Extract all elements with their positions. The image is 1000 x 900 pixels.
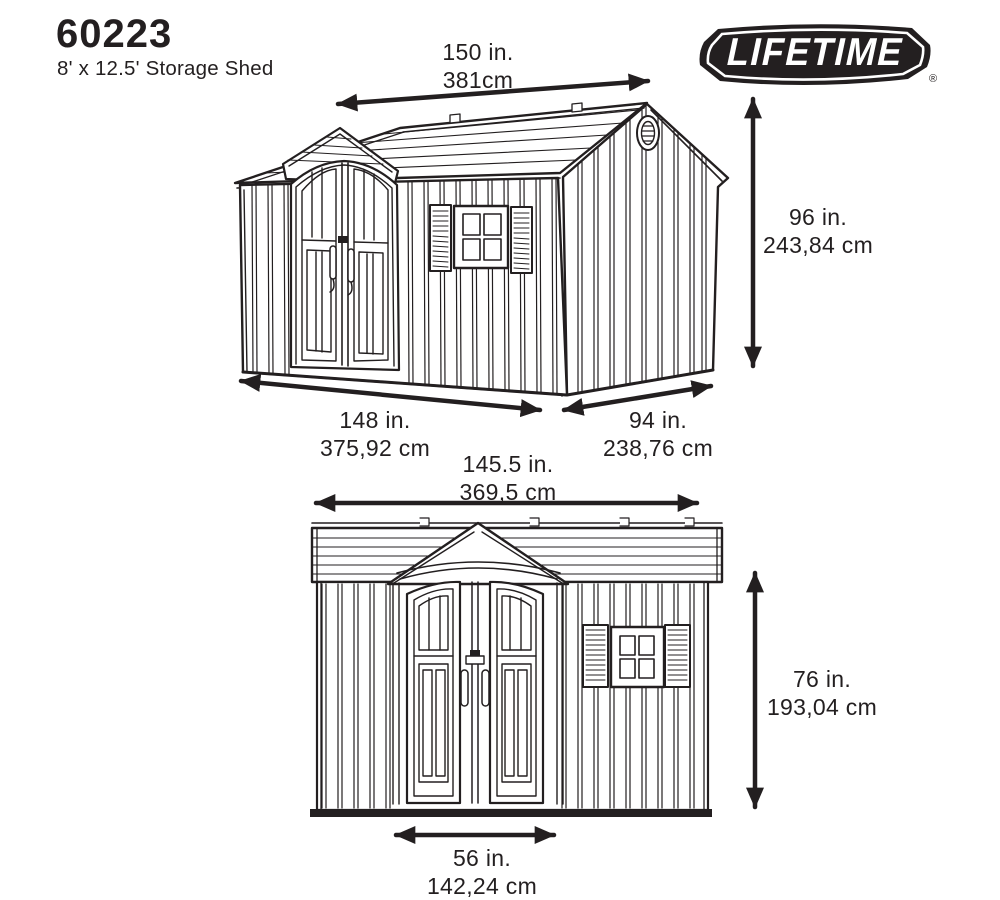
front-base-strip [310, 809, 712, 817]
dimension-value-in: 148 in. [320, 406, 430, 434]
dimension-value-in: 145.5 in. [459, 450, 556, 478]
dimension-value-in: 76 in. [767, 665, 877, 693]
front-window [583, 625, 690, 687]
dimension-value-in: 56 in. [427, 844, 537, 872]
dimension-value-cm: 142,24 cm [427, 872, 537, 900]
front-ridge-cap-tabs [420, 518, 694, 526]
dimension-label-roof-width: 150 in. 381cm [442, 38, 513, 94]
dimension-value-cm: 243,84 cm [763, 231, 873, 259]
dimension-value-cm: 193,04 cm [767, 693, 877, 721]
dimension-value-in: 150 in. [442, 38, 513, 66]
dimension-value-cm: 375,92 cm [320, 434, 430, 462]
dimension-value-in: 96 in. [763, 203, 873, 231]
spec-sheet-page: { "header": { "model_number": "60223", "… [0, 0, 1000, 892]
dimension-value-cm: 369,5 cm [459, 478, 556, 506]
perspective-double-doors [291, 161, 399, 370]
gable-vent-icon [637, 116, 659, 150]
front-double-doors [393, 582, 563, 804]
dimension-label-front-width: 148 in. 375,92 cm [320, 406, 430, 462]
dimension-label-height: 96 in. 243,84 cm [763, 203, 873, 259]
diagram-line-art [0, 0, 1000, 892]
dimension-label-front-view-width: 145.5 in. 369,5 cm [459, 450, 556, 506]
dimension-label-front-view-height: 76 in. 193,04 cm [767, 665, 877, 721]
perspective-shed [235, 96, 728, 396]
dimension-value-cm: 381cm [442, 66, 513, 94]
dimension-label-side-depth: 94 in. 238,76 cm [603, 406, 713, 462]
dimension-value-cm: 238,76 cm [603, 434, 713, 462]
perspective-window [430, 205, 532, 273]
dimension-value-in: 94 in. [603, 406, 713, 434]
front-elevation-shed [310, 518, 722, 817]
